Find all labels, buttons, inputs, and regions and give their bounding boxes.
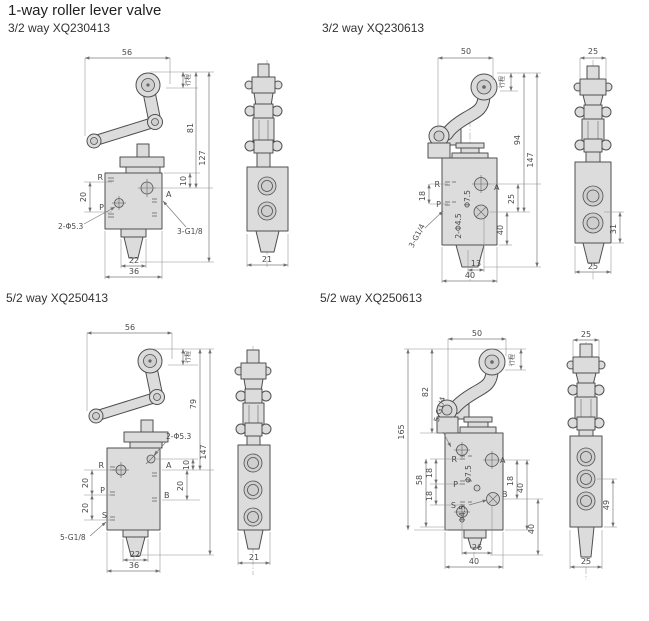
xq230413-front-view: 56 行程 10 81 127 20 R P A 2-Φ5.3 3-G1/8 (58, 48, 214, 279)
dim-height-total: 127 (198, 150, 207, 165)
label-mount-holes: 2-Φ5.3 (58, 222, 84, 231)
label-counterbore: Φ7.5 (463, 190, 472, 208)
subtitle-xq230613: 3/2 way XQ230613 (322, 21, 424, 35)
label-counterbore: Φ7.5 (464, 465, 473, 483)
dim-port-offset: 10 (179, 176, 188, 186)
dim-port-span-left: 58 (415, 475, 424, 485)
port-label-s: S (451, 501, 456, 510)
dim-width-top: 56 (125, 323, 135, 332)
label-mount-holes: 2-Φ5.3 (166, 432, 192, 441)
dim-base-outer: 40 (465, 271, 475, 280)
dim-port-pitch2: 20 (81, 503, 90, 513)
xq230413-side-view: 21 (245, 60, 288, 268)
dim-port-pitch2: 18 (425, 491, 434, 501)
port-label-p: P (436, 200, 441, 209)
dim-port-pitch1: 20 (81, 478, 90, 488)
subtitle-xq230413: 3/2 way XQ230413 (8, 21, 110, 35)
label-hole: Φ4.5 (458, 505, 467, 523)
label-mount-holes: 2-Φ4.5 (454, 213, 463, 239)
dim-side-width-top: 25 (581, 330, 591, 339)
xq250613-side-view: 25 49 25 (567, 330, 617, 580)
dim-stroke: 行程 (498, 76, 506, 88)
port-label-r: R (98, 461, 104, 470)
dim-base-inner: 13 (471, 259, 481, 268)
dim-port-pitch1: 18 (425, 468, 434, 478)
technical-drawing-canvas: 56 行程 10 81 127 20 R P A 2-Φ5.3 3-G1/8 (0, 0, 649, 621)
dim-side-port-span: 49 (602, 500, 611, 510)
dim-port-pitch: 18 (418, 191, 427, 201)
port-label-r: R (434, 180, 440, 189)
dim-right-pitch: 20 (176, 481, 185, 491)
dim-port-offset: 10 (182, 460, 191, 470)
dim-base-outer: 36 (129, 267, 139, 276)
port-label-a: A (494, 183, 500, 192)
port-label-p: P (100, 486, 105, 495)
port-label-a: A (166, 461, 172, 470)
subtitle-xq250413: 5/2 way XQ250413 (6, 291, 108, 305)
dim-height-roller: 94 (513, 135, 522, 145)
xq230613-front-view: 50 行程 18 R P A 3-G1/4 Φ7.5 2-Φ4.5 25 40 … (407, 47, 541, 283)
dim-base-inner: 22 (129, 256, 139, 265)
port-label-s: S (102, 511, 107, 520)
label-port-thread: 5-G1/8 (60, 533, 86, 542)
dim-base-inner: 26 (472, 543, 482, 552)
valve-body (105, 173, 162, 229)
port-label-b: B (164, 491, 170, 500)
port-label-p: P (453, 480, 458, 489)
valve-datasheet-page: 1-way roller lever valve 3/2 way XQ23041… (0, 0, 649, 621)
dim-base-inner: 22 (130, 550, 140, 559)
port-label-p: P (99, 203, 104, 212)
xq250413-front-view: 56 行程 79 147 2-Φ5.3 20 20 R P S A B 1 (60, 323, 214, 573)
dim-height-roller: 79 (189, 399, 198, 409)
dim-side-width-bottom: 25 (581, 557, 591, 566)
port-label-b: B (502, 490, 508, 499)
subtitle-xq250613: 5/2 way XQ250613 (320, 291, 422, 305)
dim-side-width-bottom: 25 (588, 262, 598, 271)
label-port-thread: 3-G1/8 (177, 227, 203, 236)
dim-side-port-span: 31 (609, 224, 618, 234)
dim-right-span2: 40 (527, 524, 536, 534)
port-label-a: A (500, 456, 506, 465)
dim-right-pitch: 18 (506, 476, 515, 486)
dim-height-roller: 81 (186, 123, 195, 133)
page-title: 1-way roller lever valve (8, 2, 161, 19)
dim-port-pitch: 20 (79, 192, 88, 202)
port-label-a: A (166, 190, 172, 199)
dim-width-top: 56 (122, 48, 132, 57)
dim-base-outer: 40 (469, 557, 479, 566)
dim-height-roller: 82 (421, 387, 430, 397)
dim-right-span: 40 (496, 225, 505, 235)
dim-width-top: 50 (461, 47, 471, 56)
label-port-thread: 3-G1/4 (407, 222, 427, 249)
dim-right-span1: 40 (516, 483, 525, 493)
dim-stroke: 行程 (184, 351, 192, 363)
xq250413-side-view: 21 (235, 346, 271, 575)
dim-side-width: 21 (262, 255, 272, 264)
dim-height-total: 165 (397, 424, 406, 439)
xq250613-front-view: 50 行程 165 82 5-G1/4 58 18 18 R P S A (397, 329, 543, 569)
port-label-r: R (451, 455, 457, 464)
dim-side-width: 21 (249, 553, 259, 562)
dim-stroke: 行程 (508, 354, 516, 366)
dim-stroke: 行程 (184, 74, 192, 86)
dim-side-width-top: 25 (588, 47, 598, 56)
dim-height-total: 147 (526, 152, 535, 167)
dim-width-top: 50 (472, 329, 482, 338)
dim-base-outer: 36 (129, 561, 139, 570)
port-label-r: R (97, 173, 103, 182)
dim-height-total: 147 (199, 444, 208, 459)
dim-right-pitch: 25 (507, 194, 516, 204)
xq230613-side-view: 25 31 25 (574, 47, 624, 280)
